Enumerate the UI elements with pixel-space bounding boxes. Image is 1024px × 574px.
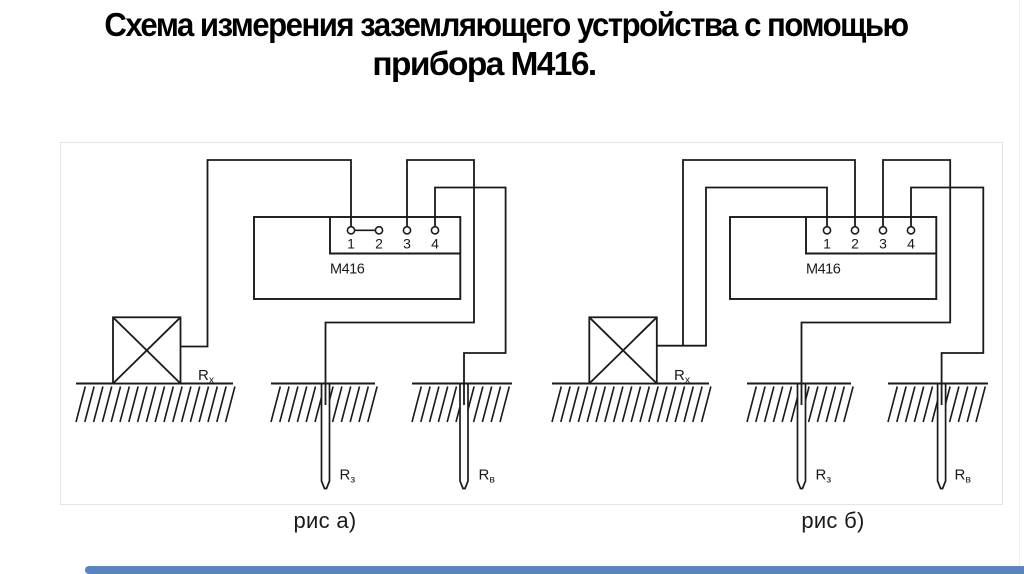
svg-text:Rз: Rз <box>816 467 832 486</box>
svg-text:2: 2 <box>851 236 859 252</box>
svg-text:М416: М416 <box>330 262 365 278</box>
svg-text:рис а): рис а) <box>294 508 357 533</box>
svg-text:1: 1 <box>823 236 831 252</box>
svg-text:1: 1 <box>347 236 355 252</box>
svg-text:М416: М416 <box>806 262 841 278</box>
svg-text:Rx: Rx <box>198 367 215 386</box>
svg-text:2: 2 <box>375 236 383 252</box>
svg-text:рис б): рис б) <box>801 508 864 533</box>
svg-text:4: 4 <box>431 236 439 252</box>
svg-text:Rз: Rз <box>340 467 356 486</box>
svg-text:4: 4 <box>907 236 915 252</box>
svg-text:3: 3 <box>879 236 887 252</box>
svg-text:3: 3 <box>403 236 411 252</box>
svg-text:Rx: Rx <box>674 367 691 386</box>
svg-text:Rв: Rв <box>955 467 972 486</box>
svg-text:Rв: Rв <box>479 467 496 486</box>
